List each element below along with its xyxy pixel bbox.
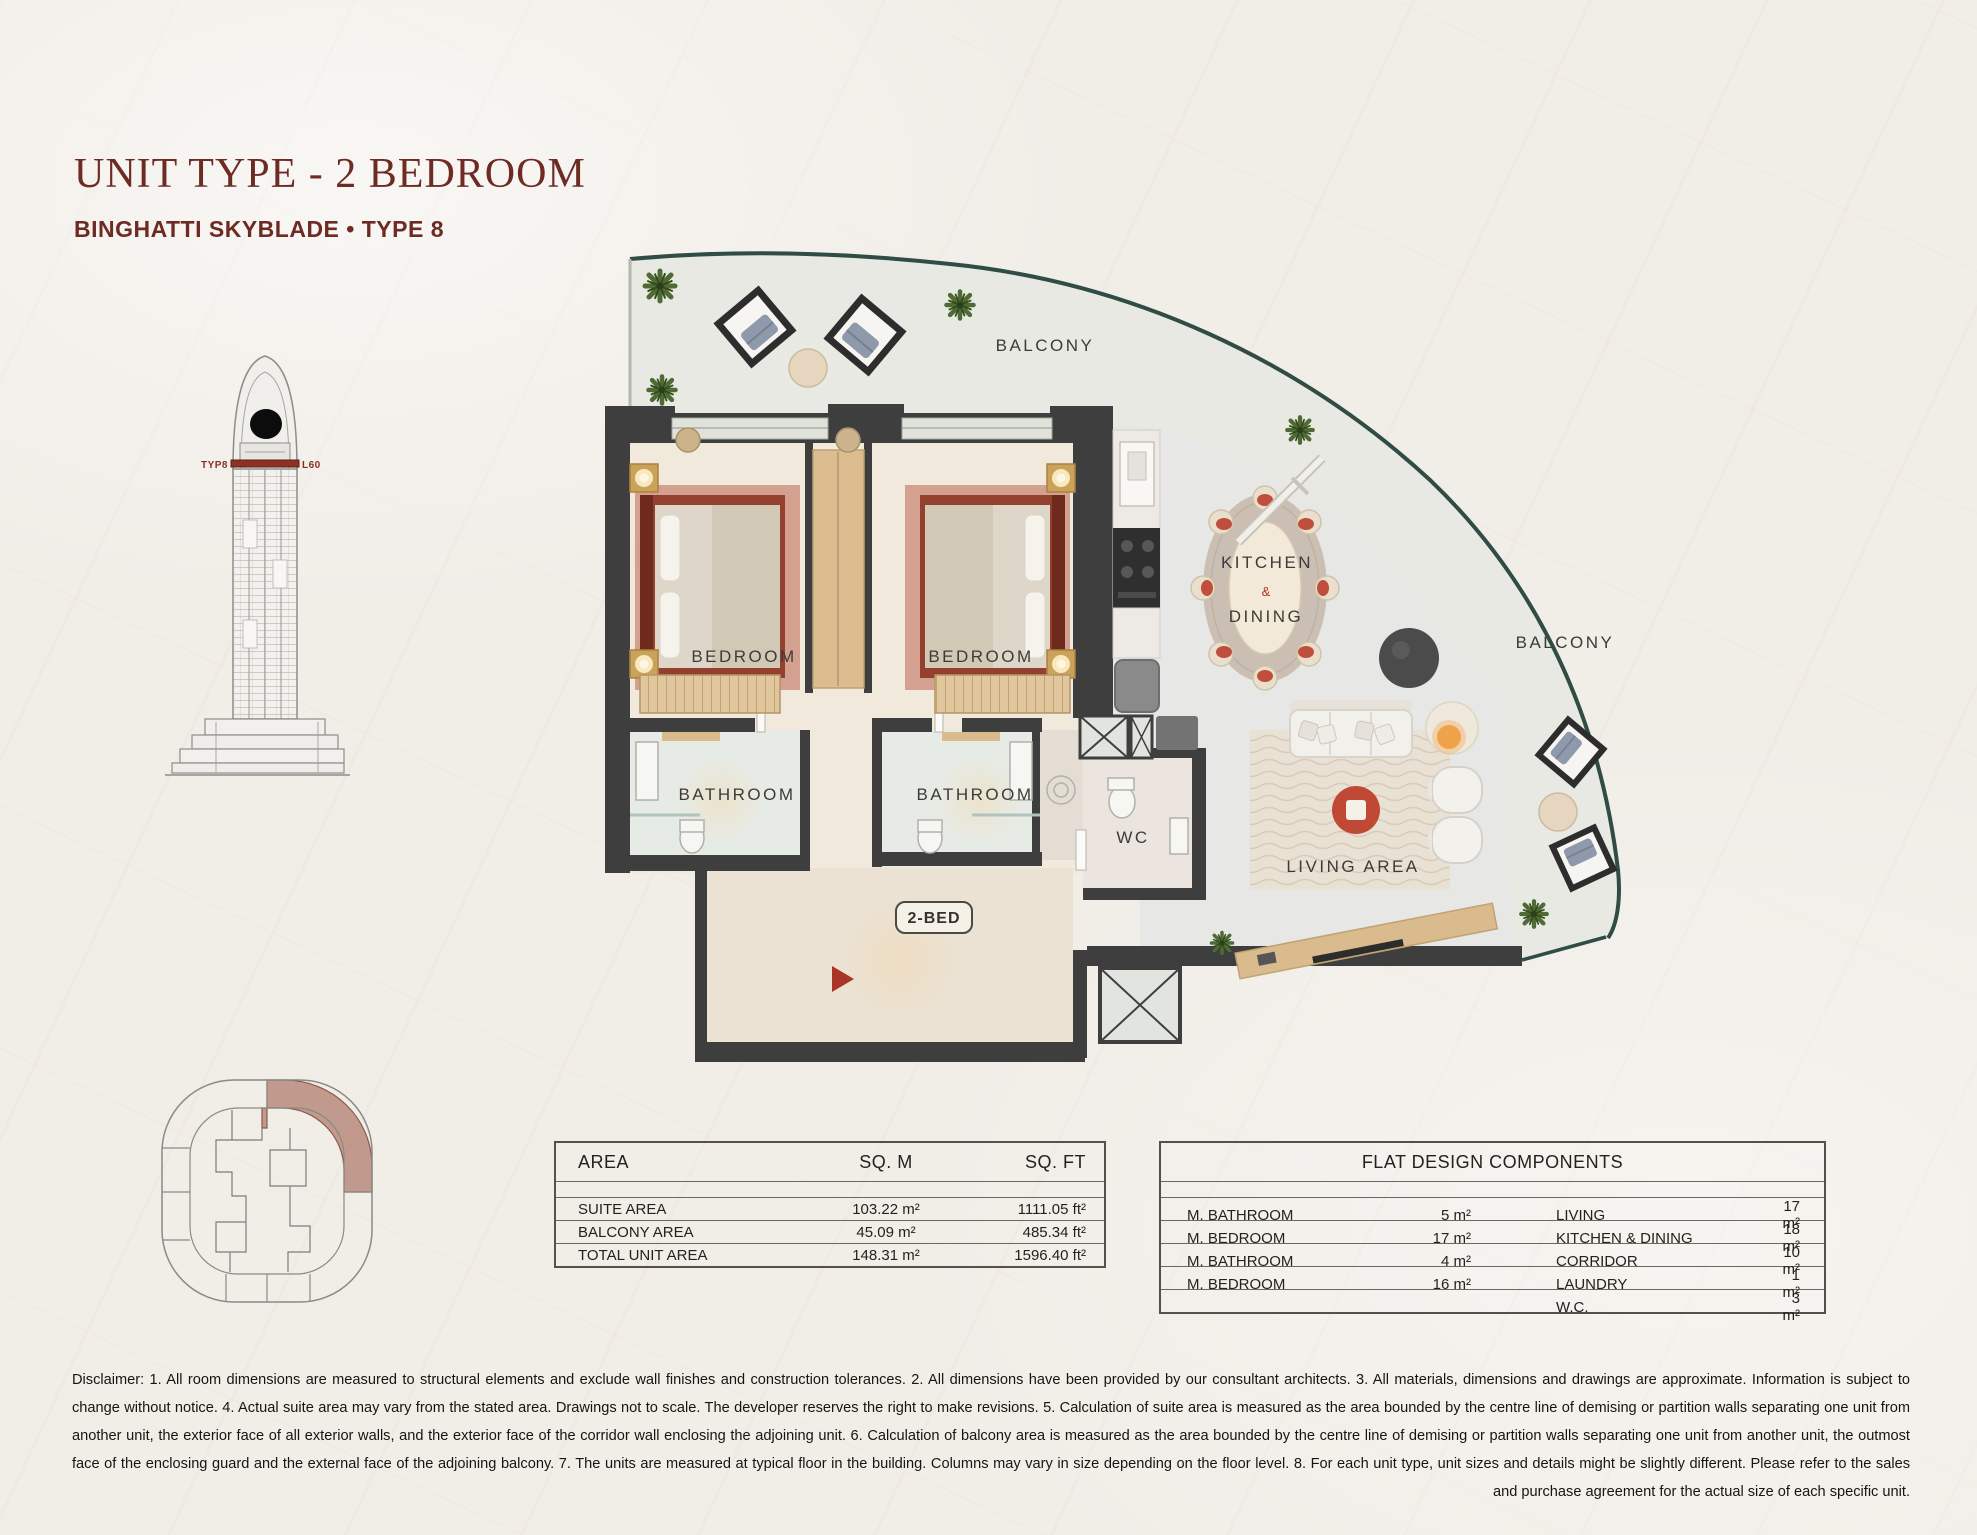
tower-type-label: TYP8	[201, 460, 228, 471]
area-table: AREA SQ. M SQ. FT SUITE AREA 103.22 m² 1…	[554, 1141, 1106, 1268]
kitchen-dining-amp: &	[1262, 584, 1271, 599]
bathroom1-label: BATHROOM	[679, 785, 796, 804]
bedroom2-label: BEDROOM	[928, 647, 1033, 666]
area-header-sqm: SQ. M	[786, 1152, 986, 1173]
total-area-label: TOTAL UNIT AREA	[556, 1247, 786, 1264]
dresser-2	[935, 675, 1070, 713]
area-header-sqft: SQ. FT	[986, 1152, 1104, 1173]
total-area-sqft: 1596.40 ft²	[986, 1247, 1104, 1264]
living-area-label: LIVING AREA	[1286, 857, 1419, 876]
flat-table-title-text: FLAT DESIGN COMPONENTS	[1161, 1152, 1824, 1173]
flat-table-title: FLAT DESIGN COMPONENTS	[1161, 1143, 1824, 1182]
tower-elevation: TYP8 L60	[165, 356, 350, 775]
table-row: TOTAL UNIT AREA 148.31 m² 1596.40 ft²	[556, 1243, 1104, 1266]
flat-row-label: M. BEDROOM	[1161, 1230, 1341, 1247]
dresser-1	[640, 675, 780, 713]
flat-row-label: LAUNDRY	[1556, 1276, 1781, 1293]
suite-area-label: SUITE AREA	[556, 1201, 786, 1218]
flat-row-label: M. BATHROOM	[1161, 1253, 1341, 1270]
plant-icon	[1286, 416, 1315, 445]
flat-row-label: M. BEDROOM	[1161, 1276, 1341, 1293]
floorplan: 2-BED BALCONY BALCONY BEDROOM BEDROOM BA…	[605, 253, 1619, 1062]
kitchen-counter	[1113, 430, 1160, 712]
unit-badge-label: 2-BED	[907, 910, 960, 927]
tower-level-band	[231, 460, 299, 467]
table-row: SUITE AREA 103.22 m² 1111.05 ft²	[556, 1198, 1104, 1220]
plant-icon	[643, 269, 677, 303]
flat-row-label: M. BATHROOM	[1161, 1207, 1341, 1224]
key-plan	[162, 1080, 372, 1302]
bedroom1-label: BEDROOM	[691, 647, 796, 666]
kitchen-label: KITCHEN	[1221, 553, 1313, 572]
plant-icon	[945, 290, 975, 320]
flat-row-label: W.C.	[1556, 1299, 1781, 1316]
tower-level-label: L60	[302, 460, 321, 471]
disclaimer-text: Disclaimer: 1. All room dimensions are m…	[72, 1366, 1910, 1506]
total-area-sqm: 148.31 m²	[786, 1247, 986, 1264]
balcony-area-label: BALCONY AREA	[556, 1224, 786, 1241]
plant-icon	[1520, 900, 1549, 929]
flat-row-value: 17 m²	[1341, 1230, 1471, 1247]
flat-row-label: KITCHEN & DINING	[1556, 1230, 1781, 1247]
round-side-table	[1379, 628, 1439, 688]
table-row: BALCONY AREA 45.09 m² 485.34 ft²	[556, 1220, 1104, 1243]
suite-area-sqft: 1111.05 ft²	[986, 1201, 1104, 1218]
balcony-area-sqft: 485.34 ft²	[986, 1224, 1104, 1241]
suite-area-sqm: 103.22 m²	[786, 1201, 986, 1218]
flat-row-value: 3 m²	[1781, 1290, 1824, 1324]
balcony-area-sqm: 45.09 m²	[786, 1224, 986, 1241]
bathroom2-label: BATHROOM	[917, 785, 1034, 804]
dining-label: DINING	[1229, 607, 1304, 626]
fridge	[1115, 660, 1159, 712]
area-table-spacer	[556, 1182, 1104, 1198]
wc-label: WC	[1116, 828, 1149, 847]
flat-row-value: 16 m²	[1341, 1276, 1471, 1293]
table-row: M. BATHROOM 5 m² LIVING 17 m²	[1161, 1198, 1824, 1220]
flat-row-value: 5 m²	[1341, 1207, 1471, 1224]
flat-design-components-table: FLAT DESIGN COMPONENTS M. BATHROOM 5 m² …	[1159, 1141, 1826, 1314]
flat-table-spacer	[1161, 1182, 1824, 1198]
flat-row-label: CORRIDOR	[1556, 1253, 1781, 1270]
key-plan-unit-highlight	[262, 1080, 372, 1192]
area-table-header: AREA SQ. M SQ. FT	[556, 1143, 1104, 1182]
plant-icon	[1210, 931, 1234, 955]
area-header-area: AREA	[556, 1152, 786, 1173]
unit-type-badge: 2-BED	[896, 902, 972, 933]
flat-row-value: 4 m²	[1341, 1253, 1471, 1270]
balcony-right-label: BALCONY	[1516, 633, 1615, 652]
flat-row-label: LIVING	[1556, 1207, 1781, 1224]
plant-icon	[647, 375, 677, 405]
balcony-top-label: BALCONY	[996, 336, 1095, 355]
